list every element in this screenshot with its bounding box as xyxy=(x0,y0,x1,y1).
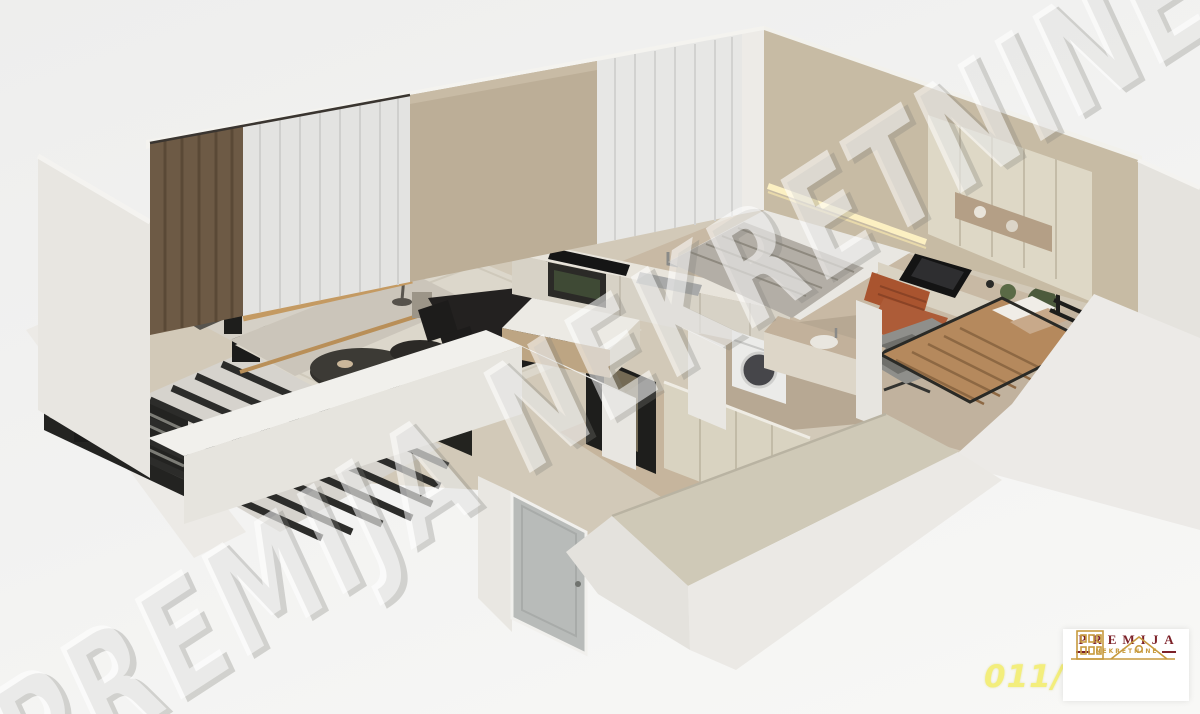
curtains-sheer-living xyxy=(243,95,410,316)
apartment-scene: PREMIJA NEKRETNINE PREMIJA NEKRETNINE xyxy=(0,0,1200,714)
door-handle xyxy=(575,581,581,587)
agency-logo: PREMIJA NEKRETNINE xyxy=(1063,629,1189,701)
logo-house-icon xyxy=(1063,629,1183,661)
bathroom-bedroom-divider xyxy=(856,300,882,428)
floor-plan-render: PREMIJA NEKRETNINE PREMIJA NEKRETNINE 01… xyxy=(0,0,1200,714)
